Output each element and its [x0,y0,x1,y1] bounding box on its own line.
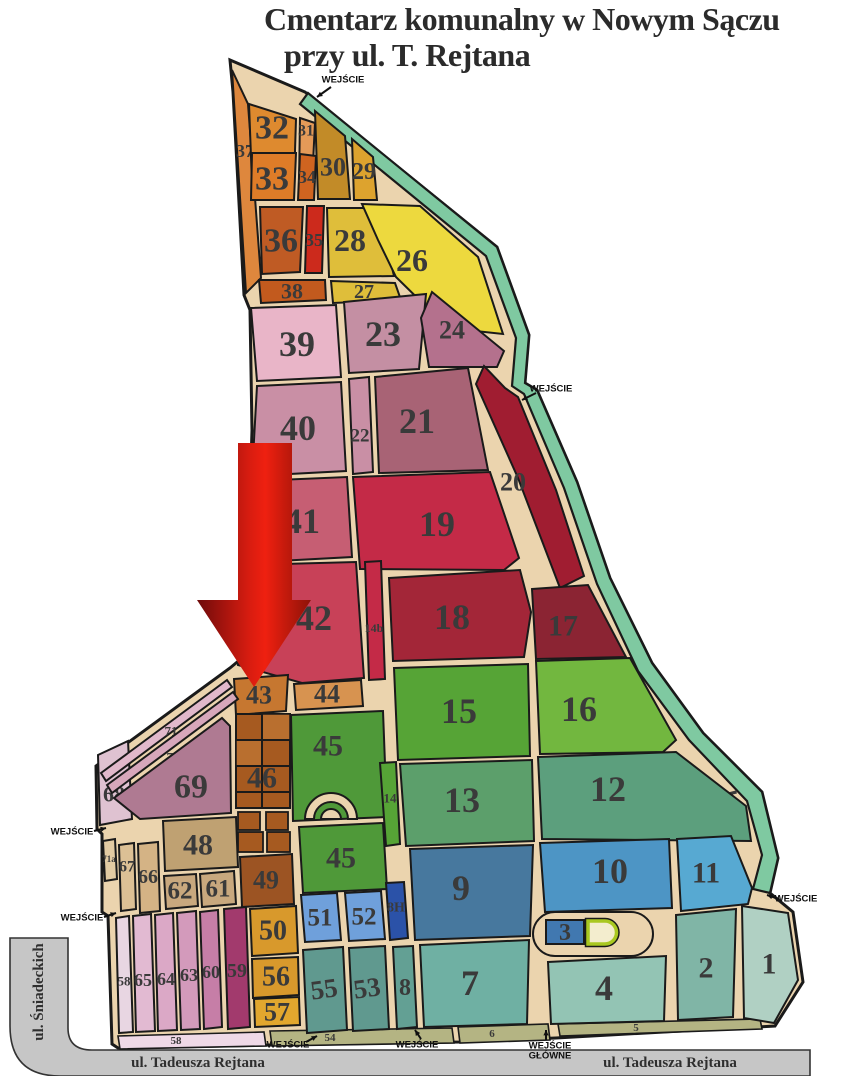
section-label-56: 56 [262,962,290,993]
chapel-icon [588,921,617,944]
section-46-plot [266,812,288,830]
section-label-63: 63 [180,965,198,985]
map-title-line2: przy ul. T. Rejtana [284,38,780,74]
section-label-57: 57 [264,998,290,1027]
section-label-55: 55 [309,972,340,1005]
street-label: ul. Tadeusza Rejtana [603,1055,737,1071]
map-title-line1: Cmentarz komunalny w Nowym Sączu [264,2,780,38]
section-46-plot [262,714,290,740]
section-label-38: 38 [281,279,303,304]
section-67 [119,843,136,911]
section-label-20: 20 [500,468,526,497]
cemetery-map-canvas: 25ul. Tadeusza Rejtanaul. Tadeusza Rejta… [0,0,852,1076]
section-label-53: 53 [352,971,383,1004]
section-label-4: 4 [595,968,613,1008]
section-label-18: 18 [434,597,470,637]
section-label-45: 45 [326,842,356,875]
map-title: Cmentarz komunalny w Nowym Sączu przy ul… [264,2,780,74]
section-label-26: 26 [396,242,428,278]
section-label-39: 39 [279,324,315,364]
section-label-8H: 8H [387,901,405,916]
section-label-9: 9 [452,868,470,908]
section-label-7: 7 [461,963,479,1003]
section-label-59: 59 [227,960,247,982]
section-9 [410,845,533,940]
entrance-label: WEJŚCIE [530,383,573,395]
section-label-61: 61 [206,876,231,903]
section-46-plot [238,832,263,852]
section-label-23: 23 [365,314,401,354]
section-label-33: 33 [255,161,289,198]
section-label-64: 64 [157,969,175,989]
section-label-11: 11 [692,857,720,890]
entrance-label: GŁÓWNE [529,1050,572,1062]
verge-strip-label-6: 6 [489,1028,495,1040]
section-46-plot [238,812,260,830]
verge-strip-label-58: 58 [171,1035,183,1047]
section-label-28: 28 [334,222,366,258]
section-label-58: 58 [118,974,132,989]
section-label-36: 36 [264,223,298,260]
section-label-65: 65 [134,970,152,990]
section-label-12: 12 [590,769,626,809]
section-label-2: 2 [699,952,714,985]
section-label-24: 24 [439,316,465,345]
section-label-13: 13 [444,780,480,820]
section-label-62: 62 [168,878,193,905]
section-label-34: 34 [298,167,316,187]
section-label-17: 17 [548,610,578,643]
section-label-35: 35 [305,230,323,250]
section-label-8: 8 [399,975,411,1001]
section-label-22: 22 [351,426,370,447]
entrance-label: WEJŚCIE [396,1039,439,1051]
section-label-21: 21 [399,401,435,441]
section-label-14: 14 [384,791,398,806]
section-label-19: 19 [419,504,455,544]
section-label-52: 52 [352,904,377,931]
entrance-label: WEJŚCIE [61,912,104,924]
section-label-30: 30 [320,153,346,182]
section-label-49: 49 [253,866,279,895]
section-46-plot [267,832,290,852]
verge-strip-label-5: 5 [633,1022,639,1034]
section-label-69: 69 [174,769,208,806]
street-label: ul. Śniadeckich [30,943,47,1041]
section-label-50: 50 [259,916,287,947]
section-label-46: 46 [247,762,277,795]
section-label-10: 10 [592,851,628,891]
section-label-43: 43 [246,681,272,710]
section-label-71a: 71a [102,854,116,864]
entrance-label: WEJŚCIE [267,1039,310,1051]
entrance-label: WEJŚCIE [51,826,94,838]
verge-strip-label-54: 54 [325,1032,337,1044]
cemetery-map-page: 25ul. Tadeusza Rejtanaul. Tadeusza Rejta… [0,0,852,1076]
section-label-31: 31 [298,123,314,140]
section-label-1: 1 [762,948,777,981]
section-label-44: 44 [314,680,340,709]
section-label-3: 3 [559,920,571,946]
section-label-60: 60 [202,962,220,982]
entrance-label: WEJŚCIE [322,74,365,86]
street-label: ul. Tadeusza Rejtana [131,1055,265,1071]
section-label-14b: 14b [365,621,384,635]
section-label-15: 15 [441,691,477,731]
section-label-32: 32 [255,110,289,147]
section-label-51: 51 [308,905,333,932]
section-label-16: 16 [561,689,597,729]
section-label-67: 67 [119,859,135,876]
section-label-29: 29 [352,159,376,185]
section-label-40: 40 [280,408,316,448]
entrance-label: WEJŚCIE [775,893,818,905]
section-label-45: 45 [313,730,343,763]
section-label-66: 66 [138,866,158,888]
section-label-48: 48 [183,829,213,862]
